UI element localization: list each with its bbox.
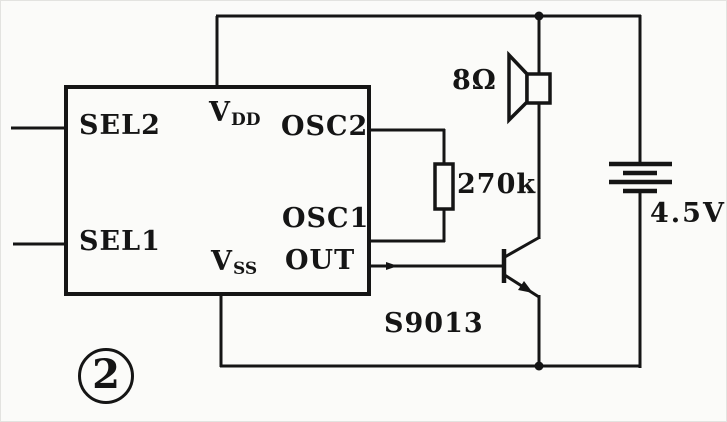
transistor-emitter-arrow-icon bbox=[518, 281, 533, 293]
figure-number-text: 2 bbox=[92, 351, 120, 401]
pin-label-vss: VSS bbox=[211, 248, 257, 276]
pin-label-sel1: SEL1 bbox=[79, 228, 161, 256]
junction-dot-top bbox=[535, 12, 544, 21]
pin-label-osc2: OSC2 bbox=[281, 113, 368, 141]
speaker-impedance-label: 8Ω bbox=[452, 67, 497, 95]
vss-base-text: V bbox=[211, 246, 233, 277]
junction-dot-bottom bbox=[535, 362, 544, 371]
transistor-part-label: S9013 bbox=[384, 310, 484, 338]
resistor-value-label: 270k bbox=[457, 171, 536, 199]
pin-label-osc1: OSC1 bbox=[282, 205, 369, 233]
vss-subscript-text: SS bbox=[233, 259, 257, 279]
resistor-body bbox=[435, 164, 453, 209]
pin-label-out: OUT bbox=[285, 247, 355, 275]
transistor-collector-line bbox=[503, 237, 540, 258]
vdd-subscript-text: DD bbox=[231, 110, 260, 130]
figure-number-badge: 2 bbox=[78, 348, 134, 404]
speaker-horn-symbol bbox=[509, 55, 527, 120]
out-wire-arrow-icon bbox=[386, 262, 398, 270]
battery-voltage-label: 4.5V bbox=[650, 200, 726, 228]
pin-label-vdd: VDD bbox=[209, 99, 260, 127]
circuit-diagram: SEL2 SEL1 VDD OSC2 OSC1 VSS OUT 8Ω 270k … bbox=[0, 0, 727, 422]
speaker-driver-symbol bbox=[527, 74, 550, 103]
pin-label-sel2: SEL2 bbox=[79, 112, 161, 140]
vdd-base-text: V bbox=[209, 97, 231, 128]
